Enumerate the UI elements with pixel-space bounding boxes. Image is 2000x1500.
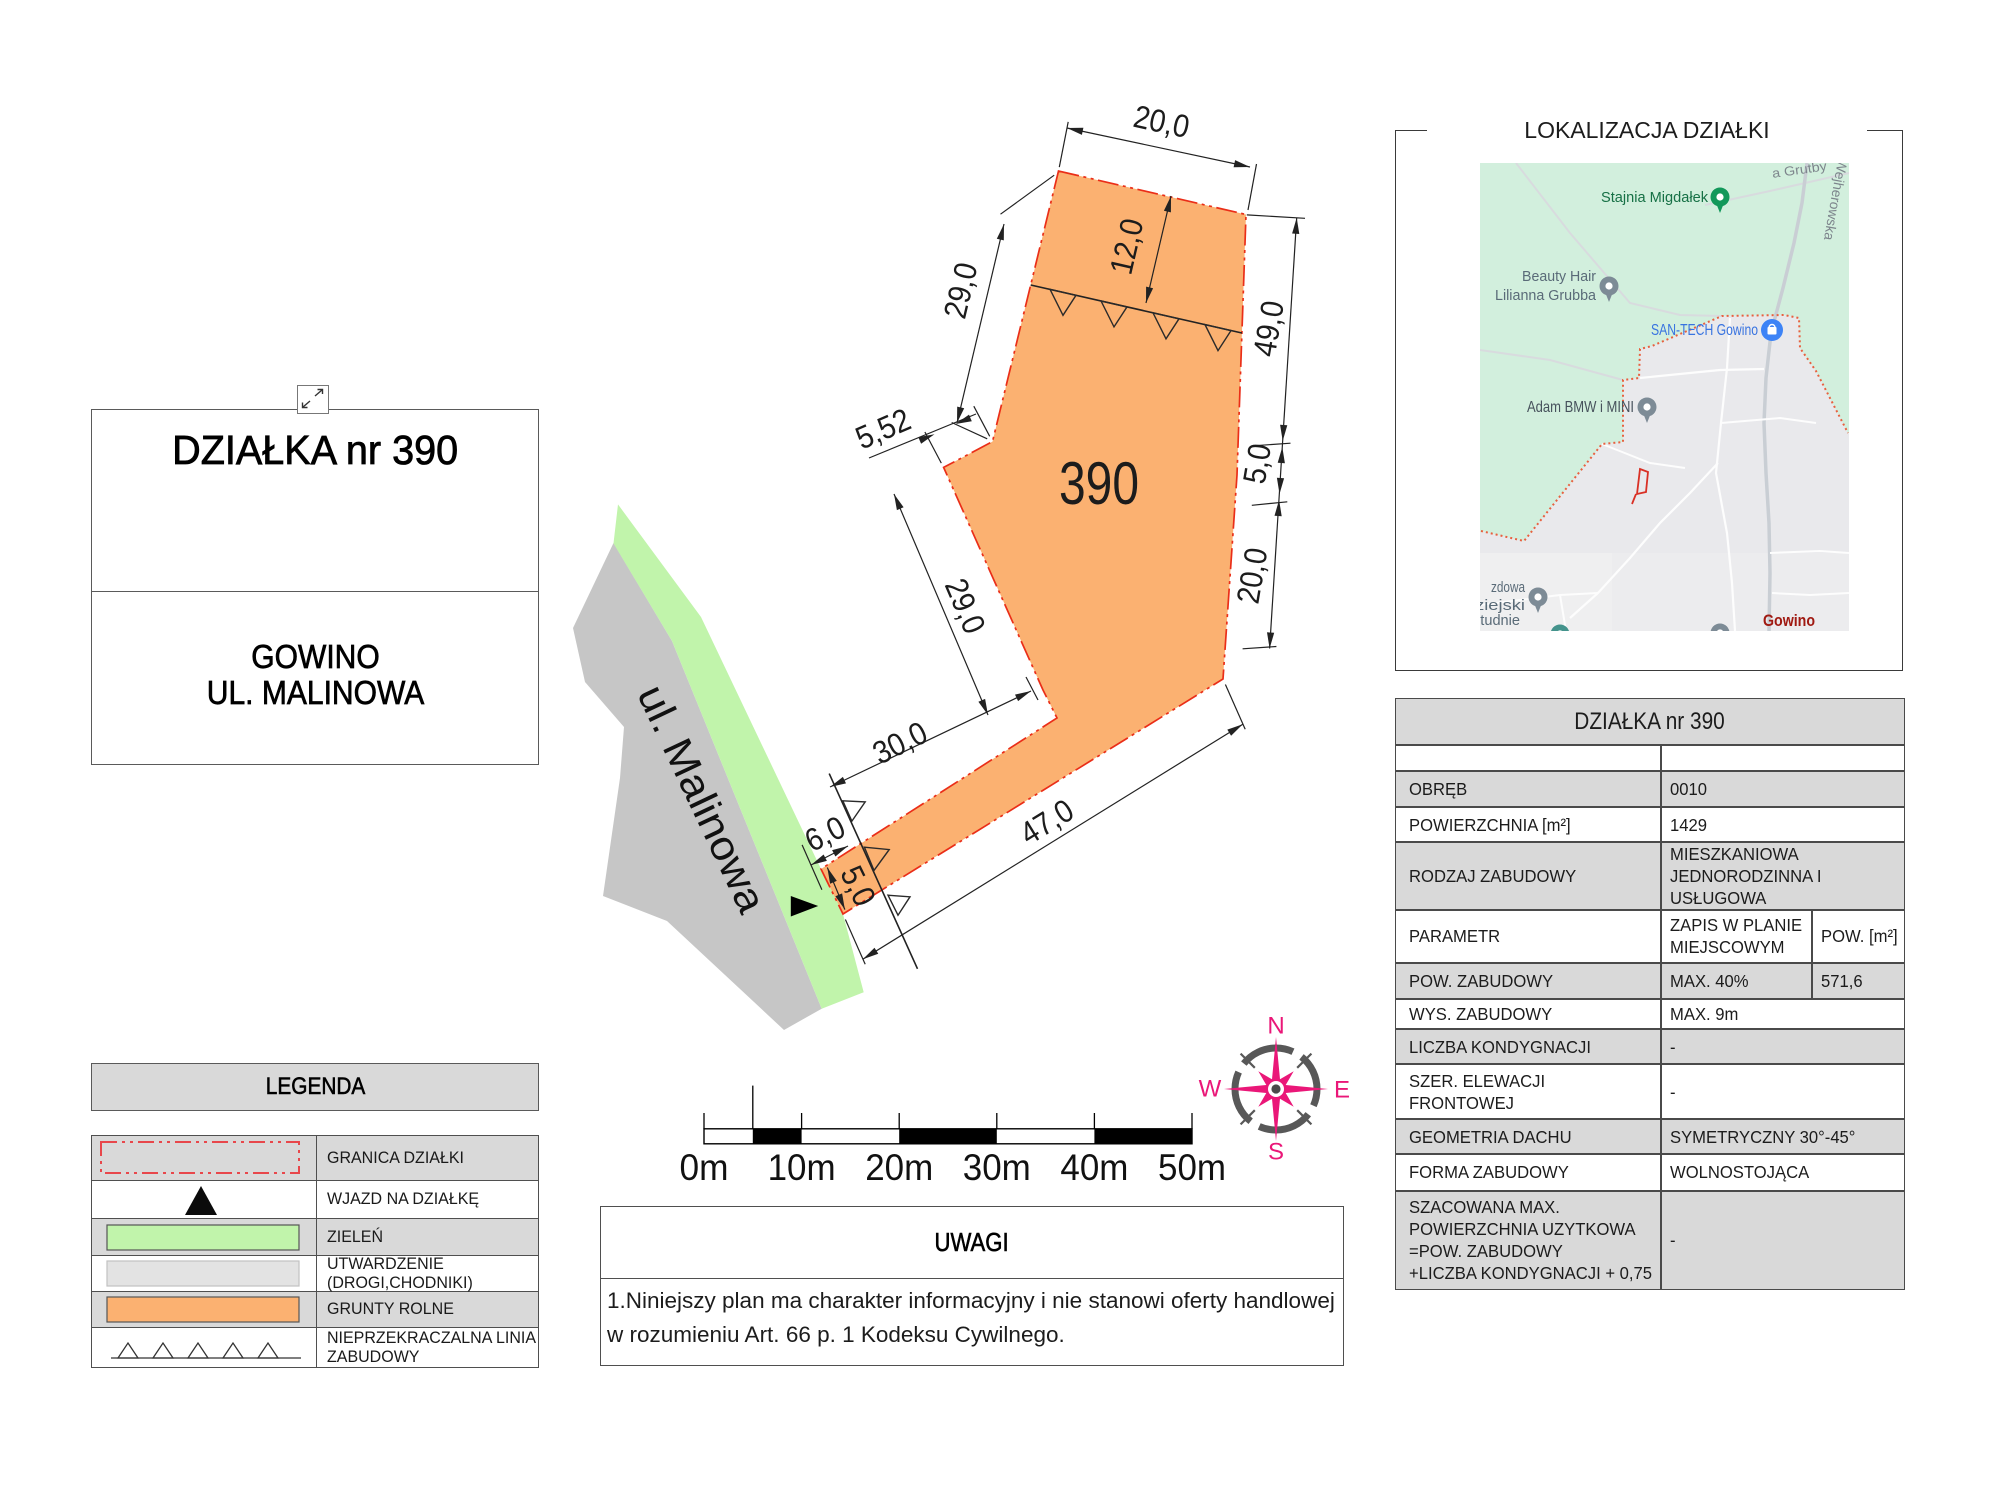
svg-text:Beauty Hair: Beauty Hair [1522,268,1596,285]
svg-text:30m: 30m [963,1147,1031,1188]
svg-text:Stajnia Migdałek: Stajnia Migdałek [1601,189,1708,206]
svg-text:N: N [1267,1013,1284,1040]
svg-text:29,0: 29,0 [937,259,985,322]
svg-text:29,0: 29,0 [938,573,993,639]
svg-text:49,0: 49,0 [1246,298,1291,359]
svg-text:5,0: 5,0 [1236,441,1278,486]
svg-text:20,0: 20,0 [1130,98,1192,145]
svg-text:SAN-TECH Gowino: SAN-TECH Gowino [1651,322,1758,339]
svg-text:Adam BMW i MINI: Adam BMW i MINI [1527,399,1634,416]
svg-text:40m: 40m [1060,1147,1128,1188]
svg-text:50m: 50m [1158,1147,1226,1188]
svg-text:20,0: 20,0 [1230,545,1275,606]
svg-text:390: 390 [1059,450,1139,517]
svg-text:studnie: studnie [1480,612,1520,629]
svg-text:5,52: 5,52 [850,401,916,456]
svg-text:20m: 20m [865,1147,933,1188]
svg-text:10m: 10m [768,1147,836,1188]
svg-text:Gowino: Gowino [1763,611,1815,630]
svg-text:W: W [1199,1076,1222,1103]
svg-text:S: S [1268,1139,1284,1166]
svg-text:30,0: 30,0 [867,714,933,771]
svg-text:Lilianna Grubba: Lilianna Grubba [1495,287,1597,304]
svg-text:0m: 0m [680,1147,729,1188]
svg-text:zdowa: zdowa [1491,579,1526,596]
svg-text:E: E [1334,1077,1350,1104]
